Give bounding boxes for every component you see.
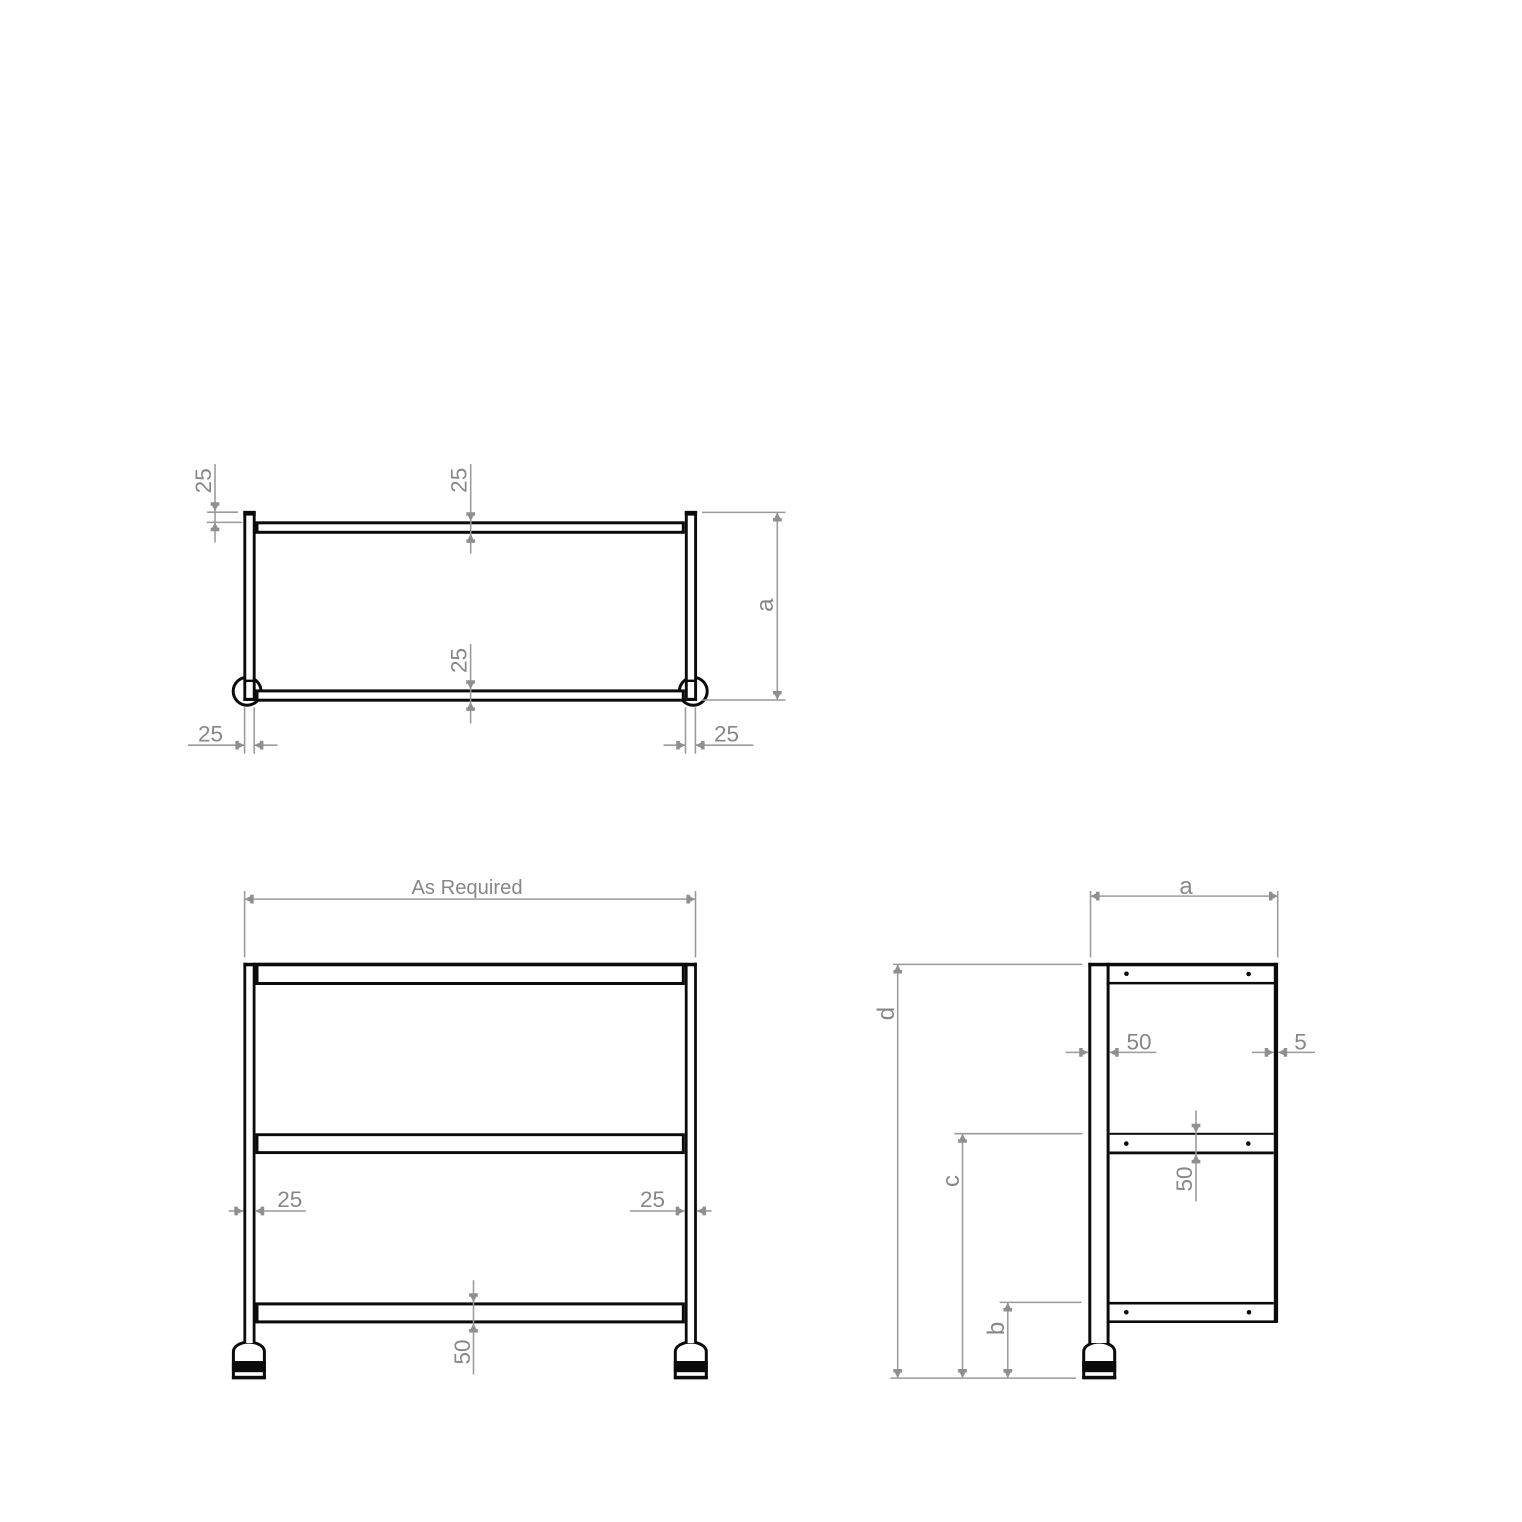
svg-text:25: 25 [191, 468, 216, 493]
svg-text:25: 25 [447, 648, 472, 673]
svg-text:50: 50 [1126, 1030, 1151, 1055]
svg-text:a: a [752, 598, 779, 612]
svg-text:a: a [1179, 873, 1193, 900]
svg-text:b: b [983, 1322, 1010, 1335]
svg-text:25: 25 [277, 1187, 302, 1212]
svg-text:As Required: As Required [411, 877, 522, 899]
svg-text:50: 50 [450, 1339, 475, 1364]
svg-text:5: 5 [1294, 1030, 1307, 1055]
svg-text:25: 25 [198, 722, 223, 747]
svg-text:d: d [873, 1007, 900, 1020]
svg-text:25: 25 [447, 468, 472, 493]
svg-text:25: 25 [640, 1187, 665, 1212]
svg-text:50: 50 [1172, 1166, 1197, 1191]
svg-text:c: c [938, 1175, 965, 1187]
svg-text:25: 25 [714, 722, 739, 747]
